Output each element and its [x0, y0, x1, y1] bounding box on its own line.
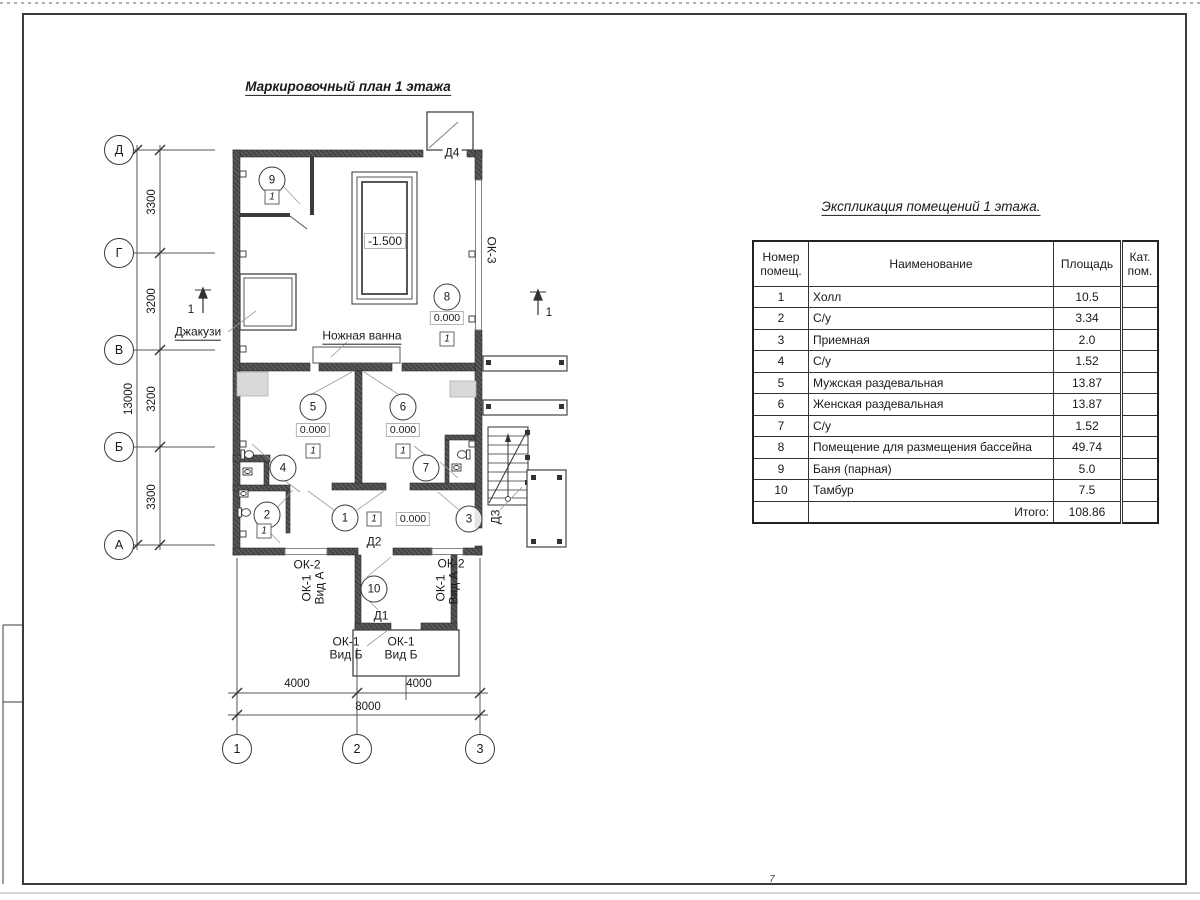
- room-number-10: 10: [361, 576, 388, 603]
- toilet-icon: [458, 450, 471, 459]
- floor-type-label: 1: [371, 514, 377, 525]
- section-mark-label-left: 1: [188, 304, 194, 316]
- room-number-4: 4: [270, 455, 297, 482]
- table-row: 5Мужская раздевальная13.87: [753, 372, 1158, 394]
- window-label-ok1-vida-right: ОК-1 Вид А: [434, 571, 459, 604]
- cell-number: [753, 501, 809, 523]
- level-mark: 0.000: [430, 311, 464, 325]
- drawing-sheet: Маркировочный план 1 этажа Д Г В Б А 330…: [0, 0, 1200, 900]
- corner-mark: 7: [769, 875, 775, 886]
- col-header-category: Кат. пом.: [1122, 241, 1159, 286]
- level-mark: 0.000: [396, 512, 430, 526]
- window-label-line: ОК-1: [330, 635, 363, 648]
- axis-col-3: 3: [465, 734, 495, 764]
- cell-area: 2.0: [1054, 329, 1122, 351]
- row-axes: [132, 145, 215, 550]
- dim-col-1: 4000: [284, 678, 310, 690]
- floor-type-marker: 1: [367, 512, 382, 527]
- window-label-line: Вид Б: [385, 648, 418, 661]
- table-row: 6Женская раздевальная13.87: [753, 394, 1158, 416]
- col-header-number: Номер помещ.: [753, 241, 809, 286]
- cell-name: С/у: [809, 351, 1054, 373]
- door-label-d2: Д2: [365, 536, 384, 549]
- axis-label: Б: [115, 440, 123, 454]
- cell-number: 1: [753, 286, 809, 308]
- plan-title: Маркировочный план 1 этажа: [245, 80, 451, 96]
- ramps: [483, 356, 567, 415]
- window-label-ok1-vidb-left: ОК-1 Вид Б: [330, 635, 363, 660]
- room-number-label: 7: [423, 462, 429, 474]
- dim-row-1: 3300: [146, 189, 158, 215]
- door-label-d4: Д4: [443, 147, 462, 160]
- cell-number: 6: [753, 394, 809, 416]
- table-row: 4С/у1.52: [753, 351, 1158, 373]
- table-row: 3Приемная2.0: [753, 329, 1158, 351]
- sink-icon: [452, 464, 461, 471]
- dim-row-2: 3200: [146, 288, 158, 314]
- axis-row-v: В: [104, 335, 134, 365]
- level-mark-pool: -1.500: [364, 233, 406, 249]
- axis-col-1: 1: [222, 734, 252, 764]
- cell-number: 5: [753, 372, 809, 394]
- cell-name: Помещение для размещения бассейна: [809, 437, 1054, 459]
- axis-col-2: 2: [342, 734, 372, 764]
- cell-name: С/у: [809, 415, 1054, 437]
- dim-col-total: 8000: [355, 701, 381, 713]
- window-label-ok2-right: ОК-2: [438, 558, 465, 571]
- window-label-line: ОК-1: [300, 571, 313, 604]
- table-row: 10Тамбур7.5: [753, 480, 1158, 502]
- window-label-line: Вид Б: [330, 648, 363, 661]
- cell-area: 7.5: [1054, 480, 1122, 502]
- table-row: 8Помещение для размещения бассейна49.74: [753, 437, 1158, 459]
- axis-row-d: Д: [104, 135, 134, 165]
- cell-category: [1122, 286, 1159, 308]
- cell-number: 4: [753, 351, 809, 373]
- axis-row-a: А: [104, 530, 134, 560]
- floor-type-marker: 1: [440, 332, 455, 347]
- cell-category: [1122, 372, 1159, 394]
- cell-category: [1122, 329, 1159, 351]
- col-header-name: Наименование: [809, 241, 1054, 286]
- toilet-icon: [241, 450, 254, 459]
- table-title: Экспликация помещений 1 этажа.: [822, 200, 1041, 216]
- floor-type-label: 1: [444, 334, 450, 345]
- explication-table: Номер помещ. Наименование Площадь Кат. п…: [752, 240, 1159, 524]
- floor-type-label: 1: [400, 446, 406, 457]
- axis-label: В: [115, 343, 123, 357]
- cell-name: Холл: [809, 286, 1054, 308]
- porch-right: [527, 470, 566, 547]
- window-ok3: [476, 180, 482, 330]
- room-number-label: 6: [400, 401, 406, 413]
- room-number-label: 10: [368, 583, 381, 595]
- axis-label: 1: [234, 742, 241, 756]
- axis-row-g: Г: [104, 238, 134, 268]
- room-number-7: 7: [413, 455, 440, 482]
- cell-number: 2: [753, 308, 809, 330]
- room-number-label: 8: [444, 291, 450, 303]
- cell-name: Приемная: [809, 329, 1054, 351]
- foot-bath: [313, 347, 400, 363]
- axis-label: 3: [477, 742, 484, 756]
- door-label-d3: Д3: [490, 510, 503, 525]
- window-label-line: ОК-1: [385, 635, 418, 648]
- table-row: 2С/у3.34: [753, 308, 1158, 330]
- cell-number: 7: [753, 415, 809, 437]
- table-row: 7С/у1.52: [753, 415, 1158, 437]
- cell-area: 5.0: [1054, 458, 1122, 480]
- toilet-icon: [238, 508, 251, 517]
- sink-icon: [243, 468, 252, 475]
- cell-category: [1122, 458, 1159, 480]
- dim-row-3: 3200: [146, 386, 158, 412]
- table-row: 1Холл10.5: [753, 286, 1158, 308]
- window-label-line: Вид А: [313, 571, 326, 604]
- cell-category: [1122, 480, 1159, 502]
- cell-name: Баня (парная): [809, 458, 1054, 480]
- vestibule-d4: [427, 112, 473, 150]
- floor-type-marker: 1: [257, 524, 272, 539]
- room-number-1: 1: [332, 505, 359, 532]
- cell-category: [1122, 394, 1159, 416]
- stairs: [488, 427, 530, 505]
- door-label-d1: Д1: [372, 610, 391, 623]
- cell-category: [1122, 501, 1159, 523]
- total-label: Итого:: [809, 501, 1054, 523]
- cell-area: 13.87: [1054, 394, 1122, 416]
- floor-type-marker: 1: [265, 190, 280, 205]
- cell-area: 1.52: [1054, 415, 1122, 437]
- axis-label: Г: [116, 246, 123, 260]
- window-label-line: Вид А: [447, 571, 460, 604]
- cell-name: Тамбур: [809, 480, 1054, 502]
- floor-type-label: 1: [310, 446, 316, 457]
- cell-area: 3.34: [1054, 308, 1122, 330]
- cell-area: 10.5: [1054, 286, 1122, 308]
- room-number-6: 6: [390, 394, 417, 421]
- cell-name: Мужская раздевальная: [809, 372, 1054, 394]
- jacuzzi-label: Джакузи: [175, 326, 221, 341]
- room-number-3: 3: [456, 506, 483, 533]
- floor-type-marker: 1: [396, 444, 411, 459]
- room-number-label: 9: [269, 174, 275, 186]
- sink-icon: [239, 490, 248, 497]
- cell-number: 8: [753, 437, 809, 459]
- window-label-ok1-vida-left: ОК-1 Вид А: [300, 571, 325, 604]
- foot-bath-label: Ножная ванна: [322, 330, 401, 345]
- window-label-ok2-left: ОК-2: [294, 559, 321, 572]
- cell-category: [1122, 308, 1159, 330]
- cell-number: 10: [753, 480, 809, 502]
- window-label-ok3: ОК-3: [485, 237, 498, 264]
- cell-name: С/у: [809, 308, 1054, 330]
- axis-label: 2: [354, 742, 361, 756]
- level-mark: 0.000: [296, 423, 330, 437]
- cell-area: 1.52: [1054, 351, 1122, 373]
- table-header-row: Номер помещ. Наименование Площадь Кат. п…: [753, 241, 1158, 286]
- room-number-label: 4: [280, 462, 286, 474]
- cell-area: 49.74: [1054, 437, 1122, 459]
- table-row: 9Баня (парная)5.0: [753, 458, 1158, 480]
- window-ok2-right: [432, 549, 463, 555]
- floor-type-marker: 1: [306, 444, 321, 459]
- floor-type-label: 1: [261, 526, 267, 537]
- window-ok2-left: [285, 549, 327, 555]
- cell-number: 3: [753, 329, 809, 351]
- dim-row-4: 3300: [146, 484, 158, 510]
- cell-name: Женская раздевальная: [809, 394, 1054, 416]
- cell-category: [1122, 415, 1159, 437]
- axis-label: А: [115, 538, 123, 552]
- dim-col-2: 4000: [406, 678, 432, 690]
- window-label-ok1-vidb-right: ОК-1 Вид Б: [385, 635, 418, 660]
- window-label-line: ОК-1: [434, 571, 447, 604]
- section-mark-label-right: 1: [546, 307, 552, 319]
- room-number-label: 1: [342, 512, 348, 524]
- room-number-8: 8: [434, 284, 461, 311]
- floor-type-label: 1: [269, 192, 275, 203]
- cell-category: [1122, 437, 1159, 459]
- axis-row-b: Б: [104, 432, 134, 462]
- room-number-label: 2: [264, 509, 270, 521]
- room-number-label: 5: [310, 401, 316, 413]
- col-header-area: Площадь: [1054, 241, 1122, 286]
- level-mark: 0.000: [386, 423, 420, 437]
- total-value: 108.86: [1054, 501, 1122, 523]
- cell-number: 9: [753, 458, 809, 480]
- table-total-row: Итого: 108.86: [753, 501, 1158, 523]
- room-number-5: 5: [300, 394, 327, 421]
- dim-row-total: 13000: [123, 383, 135, 415]
- room-number-label: 3: [466, 513, 472, 525]
- jacuzzi: [240, 274, 296, 330]
- cell-area: 13.87: [1054, 372, 1122, 394]
- cell-category: [1122, 351, 1159, 373]
- axis-label: Д: [115, 143, 123, 157]
